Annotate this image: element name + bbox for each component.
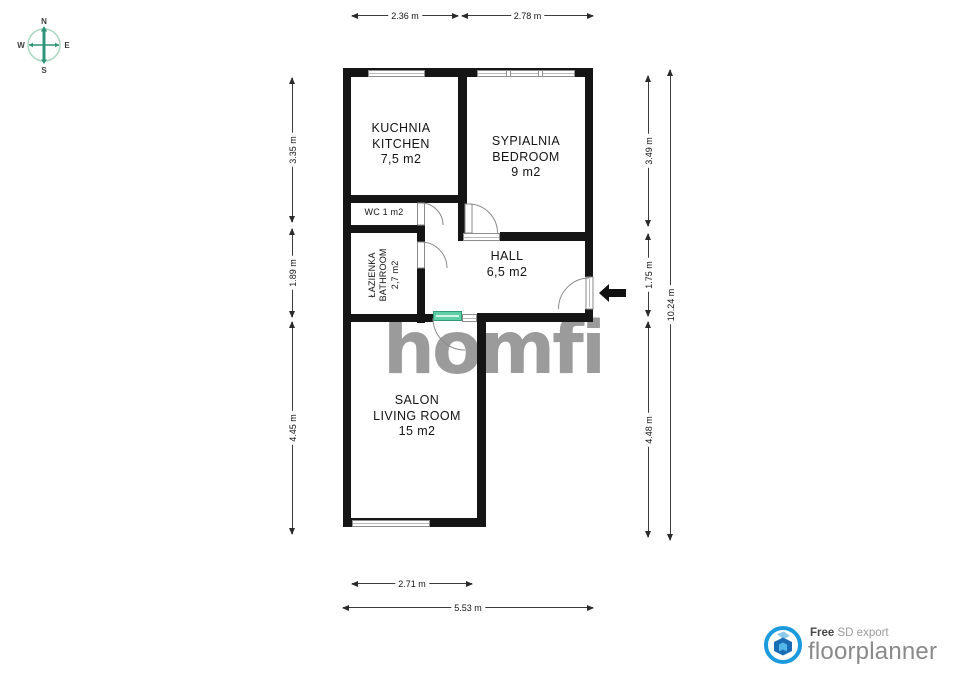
compass-w-tip <box>29 43 33 48</box>
dim-label: 2.36 m <box>388 11 422 21</box>
arrowhead <box>645 233 651 240</box>
bathroom-name-pl: ŁAZIENKA <box>367 252 377 297</box>
bathroom-name-en: BATHROOM <box>378 248 388 301</box>
arrowhead <box>645 220 651 227</box>
floorplanner-logo-icon <box>762 624 804 666</box>
dim-bottom-inner: 2.71 m <box>352 583 472 584</box>
arrowhead <box>289 528 295 535</box>
arrowhead <box>351 581 358 587</box>
arrowhead <box>289 321 295 328</box>
bathroom-area: 2,7 m2 <box>390 261 400 290</box>
entrance-arrow-icon <box>599 284 626 302</box>
arrowhead <box>645 321 651 328</box>
wc-name: WC 1 m2 <box>365 207 404 217</box>
kitchen-name-en: KITCHEN <box>372 137 430 151</box>
entrance-door-swing <box>559 278 590 309</box>
compass-rose: N S W E <box>14 14 76 76</box>
compass-w-label: W <box>17 41 25 50</box>
arrowhead <box>645 75 651 82</box>
dim-label: 3.35 m <box>288 133 298 167</box>
bedroom-door-swing <box>469 204 498 233</box>
dim-right-2: 1.75 m <box>648 234 649 316</box>
compass-s-tip <box>41 60 47 65</box>
dim-label: 4.45 m <box>288 411 298 445</box>
kitchen-area: 7,5 m2 <box>381 152 422 166</box>
dim-bottom-outer: 5.53 m <box>343 607 593 608</box>
dim-label: 2.78 m <box>511 11 545 21</box>
arrowhead <box>587 13 594 19</box>
doors-layer <box>0 0 960 679</box>
compass-s-label: S <box>41 66 47 75</box>
arrowhead <box>466 581 473 587</box>
compass-n-label: N <box>41 17 47 26</box>
dim-top-right: 2.78 m <box>462 15 593 16</box>
arrowhead <box>452 13 459 19</box>
dim-right-total: 10.24 m <box>670 70 671 540</box>
arrowhead <box>351 13 358 19</box>
arrowhead <box>587 605 594 611</box>
hall-area: 6,5 m2 <box>487 265 528 279</box>
dim-label: 4.48 m <box>644 413 654 447</box>
arrowhead <box>289 228 295 235</box>
room-label-bedroom: SYPIALNIA BEDROOM 9 m2 <box>456 134 596 181</box>
floor-plan-page: N S W E homfi <box>0 0 960 679</box>
bedroom-name-pl: SYPIALNIA <box>492 134 560 148</box>
compass-e-tip <box>55 43 59 48</box>
arrowhead <box>461 13 468 19</box>
bedroom-name-en: BEDROOM <box>492 150 559 164</box>
bathroom-door-leaf <box>418 242 425 268</box>
dim-left-2: 1.89 m <box>292 229 293 317</box>
arrowhead <box>342 605 349 611</box>
room-label-hall: HALL 6,5 m2 <box>437 249 577 280</box>
arrowhead <box>289 77 295 84</box>
dim-right-3: 4.48 m <box>648 322 649 537</box>
bedroom-area: 9 m2 <box>511 165 540 179</box>
dim-top-left: 2.36 m <box>352 15 458 16</box>
dim-label: 2.71 m <box>395 579 429 589</box>
room-label-kitchen: KUCHNIA KITCHEN 7,5 m2 <box>331 121 471 168</box>
arrowhead <box>289 311 295 318</box>
dim-label: 3.49 m <box>644 134 654 168</box>
dim-left-3: 4.45 m <box>292 322 293 534</box>
living-area: 15 m2 <box>399 424 436 438</box>
dim-label: 1.89 m <box>288 256 298 290</box>
arrowhead <box>645 531 651 538</box>
bedroom-door-leaf <box>465 204 472 233</box>
hall-name: HALL <box>491 249 524 263</box>
dim-label: 5.53 m <box>451 603 485 613</box>
dim-label: 1.75 m <box>644 258 654 292</box>
kitchen-name-pl: KUCHNIA <box>371 121 430 135</box>
living-door-swing <box>433 318 465 350</box>
arrowhead <box>645 310 651 317</box>
room-label-wc: WC 1 m2 <box>344 207 424 218</box>
dim-left-1: 3.35 m <box>292 78 293 222</box>
logo-wordmark: floorplanner <box>808 638 937 666</box>
compass-e-label: E <box>64 41 70 50</box>
room-label-bathroom: ŁAZIENKA BATHROOM 2,7 m2 <box>367 225 401 325</box>
arrowhead <box>289 216 295 223</box>
living-name-pl: SALON <box>395 393 439 407</box>
dim-label: 10.24 m <box>666 286 676 325</box>
living-name-en: LIVING ROOM <box>373 409 461 423</box>
arrowhead <box>667 534 673 541</box>
dim-right-1: 3.49 m <box>648 76 649 226</box>
floorplanner-branding: Free SD export floorplanner <box>762 624 958 668</box>
arrowhead <box>667 69 673 76</box>
room-label-living: SALON LIVING ROOM 15 m2 <box>337 393 497 440</box>
